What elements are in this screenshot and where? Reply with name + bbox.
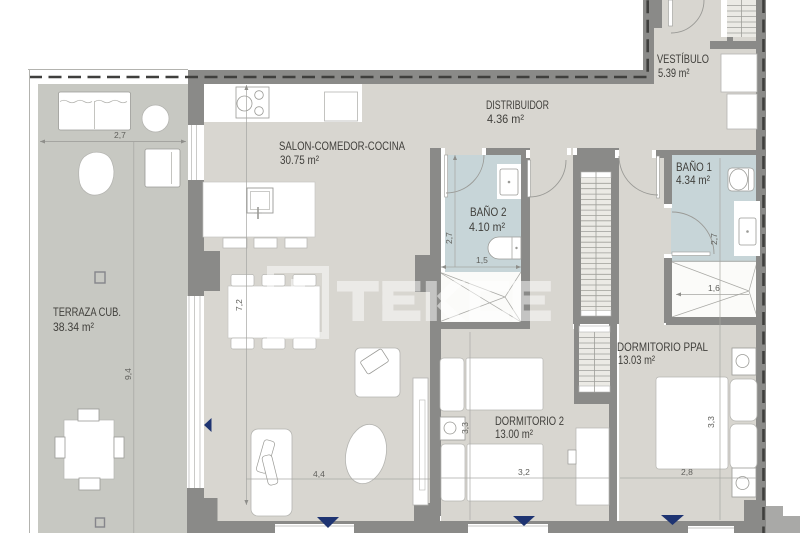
svg-text:4,4: 4,4 bbox=[313, 469, 325, 479]
svg-text:4.10 m²: 4.10 m² bbox=[469, 220, 505, 234]
svg-text:13.00 m²: 13.00 m² bbox=[495, 427, 533, 441]
svg-text:2,7: 2,7 bbox=[444, 232, 454, 244]
svg-text:BAÑO 2: BAÑO 2 bbox=[470, 205, 507, 219]
svg-text:DISTRIBUIDOR: DISTRIBUIDOR bbox=[486, 98, 549, 112]
svg-text:2,7: 2,7 bbox=[114, 130, 126, 140]
svg-text:VESTÍBULO: VESTÍBULO bbox=[657, 51, 709, 66]
svg-text:DORMITORIO PPAL: DORMITORIO PPAL bbox=[617, 340, 708, 354]
svg-text:TERRAZA CUB.: TERRAZA CUB. bbox=[53, 305, 121, 319]
svg-text:SALON-COMEDOR-COCINA: SALON-COMEDOR-COCINA bbox=[279, 139, 405, 153]
svg-text:3,2: 3,2 bbox=[518, 467, 530, 477]
svg-text:4.34 m²: 4.34 m² bbox=[676, 173, 710, 187]
svg-text:13.03 m²: 13.03 m² bbox=[618, 353, 655, 367]
svg-text:DORMITORIO 2: DORMITORIO 2 bbox=[495, 414, 564, 428]
svg-text:BAÑO 1: BAÑO 1 bbox=[676, 160, 712, 174]
svg-text:2,7: 2,7 bbox=[709, 233, 719, 245]
svg-text:5.39 m²: 5.39 m² bbox=[658, 66, 690, 80]
svg-text:7,2: 7,2 bbox=[234, 299, 244, 311]
svg-text:1,6: 1,6 bbox=[708, 283, 720, 293]
svg-text:2,8: 2,8 bbox=[681, 467, 693, 477]
svg-text:4.36 m²: 4.36 m² bbox=[487, 112, 524, 126]
svg-text:30.75 m²: 30.75 m² bbox=[280, 153, 319, 167]
svg-text:3,3: 3,3 bbox=[706, 416, 716, 428]
svg-text:38.34 m²: 38.34 m² bbox=[53, 320, 94, 334]
svg-text:1,5: 1,5 bbox=[476, 255, 488, 265]
svg-text:9,4: 9,4 bbox=[123, 368, 133, 380]
svg-text:3,3: 3,3 bbox=[460, 422, 470, 434]
